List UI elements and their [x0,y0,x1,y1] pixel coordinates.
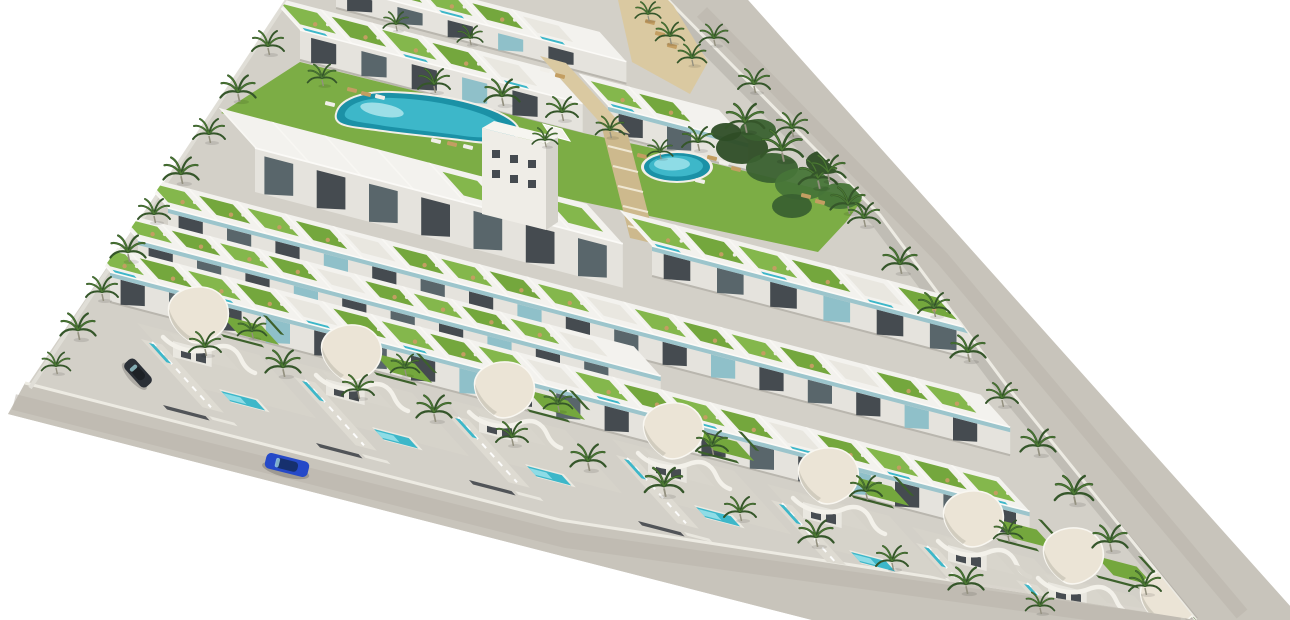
terrace-furniture [326,238,330,242]
palm-shadow [1036,612,1049,616]
palm-shadow [812,545,827,549]
palm-shadow [860,225,874,229]
terrace-furniture [761,351,765,355]
palm-shadow [508,444,522,448]
palm-shadow [888,568,902,572]
palm-shadow [998,405,1012,409]
aerial-render-3d [0,0,1290,620]
palm-shadow [788,135,802,139]
terrace-furniture [716,416,720,420]
terrace-furniture [376,36,380,40]
palm-shadow [964,360,979,364]
terrace-furniture [232,290,236,294]
terrace-furniture [620,98,624,102]
terrace-furniture [513,18,517,22]
terrace-furniture [897,466,901,470]
terrace-furniture [461,352,465,356]
terrace-furniture [519,288,523,292]
terrace-furniture [681,111,685,115]
palm-shadow [962,592,977,596]
palm-shadow [74,338,89,342]
palm-shadow [98,299,112,303]
terrace-furniture [909,466,913,470]
terrace-furniture [764,428,768,432]
terrace-furniture [669,111,673,115]
palm-shadow [694,149,708,153]
palm-shadow [1069,502,1086,507]
terrace-furniture [945,478,949,482]
terrace-furniture [171,277,175,281]
tree-cluster [711,123,741,141]
tower-window [528,180,536,188]
terrace-furniture [193,200,197,204]
palm-shadow [205,141,219,145]
palm-shadow [177,182,192,186]
palm-shadow [688,64,701,68]
terrace-furniture [441,308,445,312]
terrace-furniture [150,232,154,236]
palm-shadow [318,84,331,88]
terrace-furniture [550,333,554,337]
terrace-furniture [199,245,203,249]
terrace-furniture [450,4,454,8]
terrace-furniture [606,390,610,394]
terrace-furniture [280,302,284,306]
terrace-furniture [906,389,910,393]
terrace-furniture [453,308,457,312]
terrace-furniture [861,453,865,457]
tower-window [510,155,518,163]
terrace-furniture [183,277,187,281]
terrace-furniture [422,263,426,267]
terrace-furniture [772,266,776,270]
stair-tower-side [546,137,558,230]
palm-shadow [150,221,164,225]
palm-shadow [1141,593,1155,597]
palm-shadow [736,519,750,523]
scene-svg [0,0,1290,620]
palm-shadow [354,397,368,401]
palm-shadow [234,100,249,104]
terrace-furniture [377,327,381,331]
terrace-furniture [713,339,717,343]
terrace-furniture [405,295,409,299]
terrace-furniture [810,364,814,368]
palm-shadow [393,30,404,33]
terrace-furniture [919,389,923,393]
palm-shadow [52,372,65,376]
palm-shadow [124,260,139,264]
facade-window [347,0,372,12]
palm-shadow [645,20,656,23]
terrace-furniture [260,258,264,262]
palm-shadow [584,469,599,473]
terrace-furniture [247,257,251,261]
palm-shadow [740,130,757,135]
terrace-furniture [229,213,233,217]
terrace-furniture [633,98,637,102]
terrace-furniture [463,5,467,9]
terrace-furniture [163,232,167,236]
palm-shadow [1034,454,1049,458]
terrace-furniture [826,280,830,284]
terrace-furniture [677,326,681,330]
terrace-furniture [211,245,215,249]
terrace-furniture [619,390,623,394]
terrace-furniture [774,352,778,356]
palm-shadow [279,375,294,379]
palm-shadow [813,186,830,191]
terrace-furniture [464,61,468,65]
terrace-furniture [241,213,245,217]
palm-shadow [264,53,278,57]
terrace-furniture [752,428,756,432]
palm-shadow [498,104,513,108]
terrace-furniture [338,238,342,242]
palm-shadow [750,91,764,95]
terrace-furniture [725,339,729,343]
terrace-furniture [413,340,417,344]
terrace-furniture [839,281,843,285]
palm-shadow [401,374,414,378]
terrace-furniture [568,301,572,305]
terrace-furniture [1006,491,1010,495]
terrace-furniture [425,340,429,344]
palm-shadow [201,354,215,358]
terrace-furniture [477,62,481,66]
terrace-furniture [471,276,475,280]
palm-shadow [1004,540,1017,544]
terrace-furniture [538,333,542,337]
terrace-furniture [532,289,536,293]
terrace-furniture [733,253,737,257]
terrace-furniture [268,302,272,306]
terrace-furniture [313,22,317,26]
terrace-furniture [290,226,294,230]
terrace-furniture [500,17,504,21]
terrace-furniture [414,48,418,52]
terrace-furniture [786,267,790,271]
tower-window [510,175,518,183]
terrace-furniture [664,326,668,330]
terrace-furniture [719,252,723,256]
unit-divider-wall [79,238,113,273]
palm-shadow [659,494,676,499]
tower-window [492,170,500,178]
palm-shadow [896,272,911,276]
terrace-furniture [435,263,439,267]
terrace-furniture [703,415,707,419]
terrace-furniture [180,200,184,204]
palm-shadow [248,337,261,341]
palm-shadow [708,453,722,457]
terrace-furniture [994,491,998,495]
terrace-furniture [666,238,670,242]
palm-shadow [558,119,572,123]
terrace-furniture [580,301,584,305]
terrace-furniture [392,295,396,299]
terrace-furniture [483,276,487,280]
terrace-furniture [296,270,300,274]
palm-shadow [542,146,553,149]
palm-shadow [430,91,444,95]
terrace-furniture [277,225,281,229]
terrace-furniture [308,270,312,274]
palm-shadow [657,158,668,161]
palm-shadow [710,44,723,48]
terrace-furniture [967,402,971,406]
palm-shadow [862,498,876,502]
palm-shadow [824,180,839,184]
tower-window [492,150,500,158]
terrace-furniture [135,264,139,268]
tower-window [528,160,536,168]
palm-shadow [430,420,445,424]
terrace-furniture [122,264,126,268]
palm-shadow [777,159,795,164]
terrace-furniture [958,479,962,483]
terrace-furniture [489,320,493,324]
palm-shadow [930,315,944,319]
palm-shadow [1106,550,1121,554]
terrace-furniture [427,49,431,53]
terrace-furniture [822,364,826,368]
palm-shadow [554,410,567,414]
terrace-furniture [326,23,330,27]
terrace-furniture [219,289,223,293]
terrace-furniture [502,321,506,325]
palm-shadow [606,136,619,140]
terrace-furniture [474,353,478,357]
palm-shadow [467,44,478,47]
terrace-furniture [955,402,959,406]
terrace-furniture [680,239,684,243]
terrace-furniture [363,35,367,39]
palm-shadow [666,42,679,46]
